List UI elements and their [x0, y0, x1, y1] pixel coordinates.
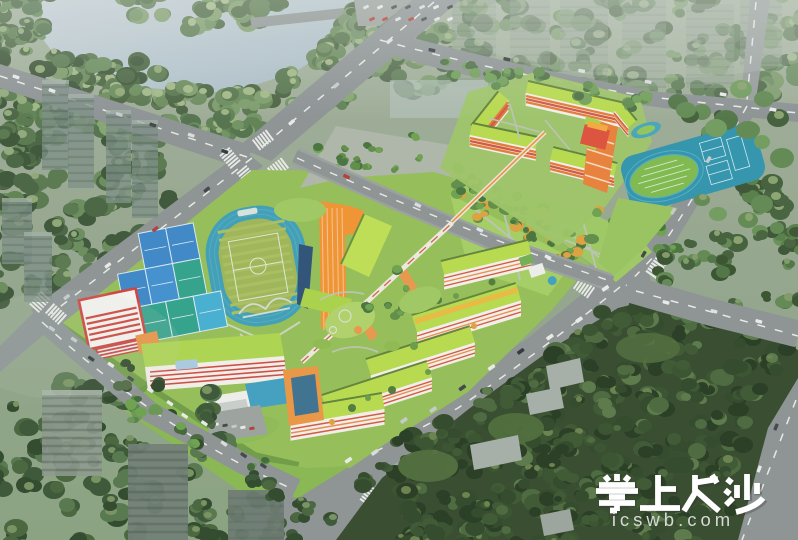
svg-text:icswb.com: icswb.com [612, 509, 734, 530]
